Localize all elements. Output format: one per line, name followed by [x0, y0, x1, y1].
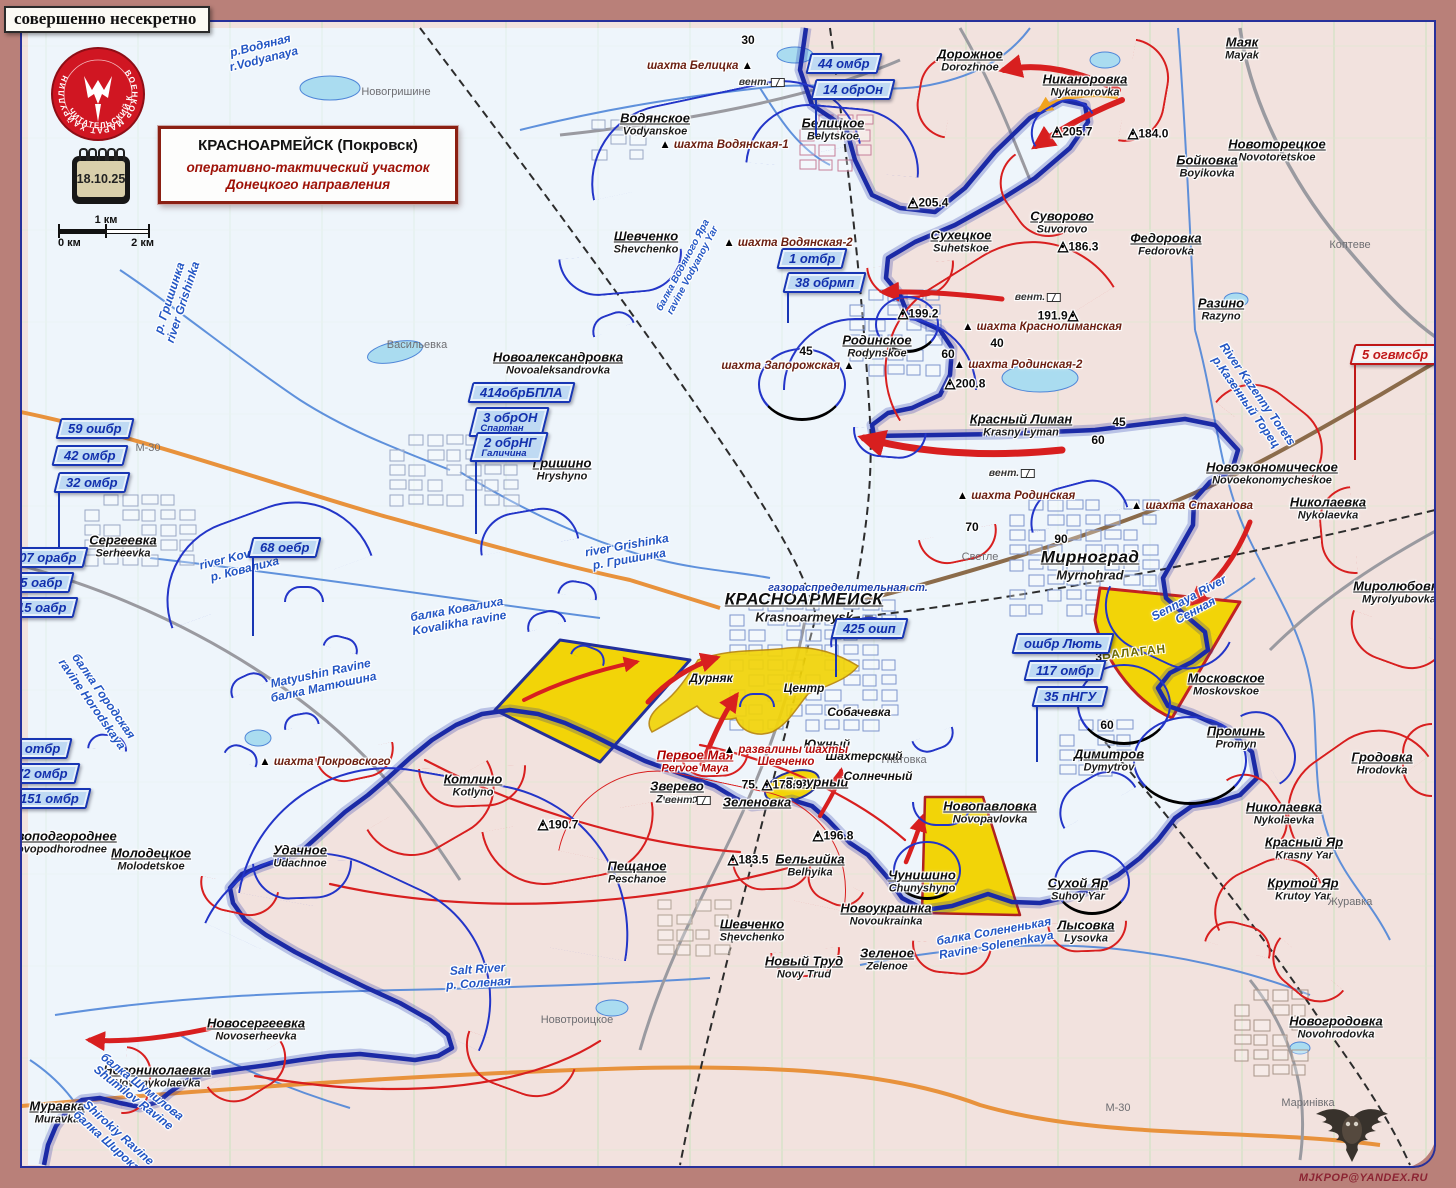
height-marker: △205.4 — [908, 194, 949, 211]
town-name-translit: Udachnoe — [273, 858, 327, 870]
town-label: СухецкоеSuhetskoe — [930, 228, 991, 255]
mine-name: шахта Запорожская — [721, 360, 840, 372]
town-name-ru: Красный Лиман — [970, 412, 1072, 427]
unit-designation: 44 омбр — [818, 56, 870, 71]
unit-flag: 1 отбр — [779, 248, 845, 269]
spot-number: 70 — [965, 520, 978, 534]
minor-place-label: М-30 — [135, 442, 160, 454]
town-name-translit: Krasny Lyman — [970, 427, 1072, 439]
friendly-position-arc — [323, 632, 361, 655]
river-label: Matyushin Ravine балка Матюшина — [266, 655, 377, 705]
unit-flag: 2 отбр — [20, 738, 70, 759]
town-name-translit: Dorozhnoe — [937, 62, 1003, 74]
town-name-translit: Mayak — [1225, 50, 1259, 62]
unit-designation: 117 омбр — [1036, 663, 1094, 678]
town-label: НовоэкономическоеNovoekonomycheskoe — [1206, 460, 1338, 487]
height-icon: △ — [762, 776, 773, 792]
height-icon: △ — [1128, 125, 1139, 141]
town-name-ru: Шевченко — [614, 229, 679, 244]
unit-designation: 35 пНГУ — [1044, 689, 1096, 704]
town-name-ru: Новоалександровка — [493, 350, 623, 365]
mine-name: развалины шахтыШевченко — [738, 744, 848, 768]
scale-bar: 1 км 0 км 2 км — [58, 214, 154, 249]
town-name-translit: Hryshyno — [533, 471, 592, 483]
town-name-ru: Николаевка — [1290, 495, 1366, 510]
town-label: МирноградMyrnohrad — [1041, 548, 1140, 583]
town-name-translit: Novy Trud — [765, 969, 843, 981]
unit-designation: 151 омбр — [20, 791, 79, 806]
unit-designation: 414обрБПЛА — [480, 385, 563, 400]
minor-place-label: Коптеве — [1329, 239, 1370, 251]
town-label: НовоторецкоеNovotoretskoe — [1228, 137, 1325, 164]
mine-ruins-label: ▲ развалины шахтыШевченко — [724, 744, 848, 768]
town-name-translit: Suhetskoe — [930, 243, 991, 255]
unit-designation: ошбр Лють — [1024, 636, 1102, 651]
unit-flag: 2 обрНГГаличина — [473, 432, 545, 462]
mine-label: шахта Запорожская ▲ — [721, 360, 854, 372]
town-label: БойковкаBoyikovka — [1176, 153, 1237, 180]
minor-place-label: Гнатовка — [881, 754, 926, 766]
town-name-ru: Новоподгороднее — [20, 829, 117, 844]
flag-pole — [1354, 365, 1356, 460]
height-value: 186.3 — [1068, 240, 1098, 254]
town-label: НиколаевкаNykolaevka — [1246, 800, 1322, 827]
town-name-ru: Разино — [1198, 296, 1244, 311]
river-label: балка Городская ravine Horodskaya — [56, 648, 141, 752]
town-label: Зеленовка — [723, 795, 792, 810]
vent-shaft-label: вент. — [989, 467, 1035, 479]
town-label: Красный ЛиманKrasny Lyman — [970, 412, 1072, 439]
town-name-translit: Suvorovo — [1030, 224, 1093, 236]
friendly-position-arc — [758, 348, 846, 421]
height-marker: △184.0 — [1128, 125, 1169, 142]
height-icon: △ — [908, 194, 919, 210]
friendly-position-arc — [851, 427, 927, 461]
height-value: 178.9 — [772, 778, 802, 792]
town-name-translit: Myrolyubovka — [1353, 594, 1436, 606]
mine-label: ▲ шахта Водянская-1 — [659, 139, 788, 151]
town-label: НовоалександровкаNovoaleksandrovka — [493, 350, 623, 377]
town-label: НовопавловкаNovopavlovka — [943, 799, 1037, 826]
height-icon: △ — [538, 816, 549, 832]
vent-shaft-label: вент. — [739, 76, 785, 88]
height-value: 205.4 — [918, 196, 948, 210]
height-marker: △200.8 — [945, 375, 986, 392]
mine-icon: ▲ — [957, 490, 968, 502]
mine-label: шахта Белицка ▲ — [647, 60, 753, 72]
town-name-translit: Shevchenko — [720, 932, 785, 944]
town-label: ШевченкоShevchenko — [720, 917, 785, 944]
mine-name: шахта Родинская — [971, 490, 1075, 502]
town-label: Первое МаяPervoe Maya — [657, 748, 734, 775]
town-name-ru: Первое Мая — [657, 748, 734, 763]
town-name-translit: Nykolaevka — [1290, 510, 1366, 522]
friendly-position-arc — [282, 710, 320, 730]
unit-designation: 68 оебр — [260, 540, 309, 555]
unit-flag: ошбр Лють — [1014, 633, 1112, 654]
town-name-ru: Котлино — [444, 772, 503, 787]
mine-label: ▲ шахта Родинская-2 — [954, 359, 1083, 371]
scale-zero-label: 0 км — [58, 237, 81, 249]
flag-pole — [787, 293, 789, 323]
town-name-translit: Belytskoe — [802, 131, 865, 143]
friendly-position-arc — [588, 307, 635, 338]
spot-number: 45 — [1112, 415, 1125, 429]
mine-icon: ▲ — [1131, 500, 1142, 512]
height-icon: △ — [1068, 307, 1079, 323]
unit-flag: 59 ошбр — [58, 418, 132, 439]
flag-pole — [815, 100, 817, 136]
river-label: р.Водяная r.Vodyanaya — [225, 30, 300, 74]
height-value: 183.5 — [738, 853, 768, 867]
town-name-translit: Boyikovka — [1176, 168, 1237, 180]
spot-number: 60 — [1091, 433, 1104, 447]
minor-place-label: М-30 — [1105, 1102, 1130, 1114]
town-label: НовоукраинкаNovoukrainka — [840, 901, 931, 928]
map-date: 18.10.25 — [77, 161, 125, 197]
town-name-ru: Бельгийка — [775, 852, 844, 867]
district-label: Дурняк — [689, 671, 732, 685]
enemy-position-arc — [1259, 937, 1344, 1016]
town-name-translit: Vodyanskoe — [620, 126, 690, 138]
town-name-ru: Новопавловка — [943, 799, 1037, 814]
height-marker: △190.7 — [538, 816, 579, 833]
unit-designation: 1 отбр — [789, 251, 835, 266]
town-name-translit: Nykanorovka — [1043, 87, 1128, 99]
town-label: ГродовкаHrodovka — [1351, 750, 1412, 777]
friendly-position-arc — [739, 693, 775, 707]
vent-icon — [697, 796, 711, 805]
town-name-ru: Зверево — [650, 779, 704, 794]
town-name-translit: Novoukrainka — [840, 916, 931, 928]
unit-flag: 42 омбр — [54, 445, 126, 466]
town-name-translit: Peschanoe — [608, 874, 667, 886]
town-label: ДорожноеDorozhnoe — [937, 47, 1003, 74]
friendly-position-arc — [224, 740, 263, 768]
mine-name: шахта Водянская-1 — [674, 139, 789, 151]
unit-designation: 72 омбр — [20, 766, 68, 781]
unit-flag: 35 пНГУ — [1034, 686, 1106, 707]
town-name-ru: Суворово — [1030, 209, 1093, 224]
town-label: МосковскоеMoskovskoe — [1187, 671, 1264, 698]
unit-flag: 414обрБПЛА — [470, 382, 573, 403]
minor-place-label: Журавка — [1328, 896, 1373, 908]
town-label: ФедоровкаFedorovka — [1130, 231, 1201, 258]
town-label: Новый ТрудNovy Trud — [765, 954, 843, 981]
town-name-ru: Мирноград — [1041, 548, 1140, 568]
unit-flag: 15 оабр — [20, 597, 76, 618]
town-name-ru: Сергеевка — [89, 533, 156, 548]
town-name-translit: Hrodovka — [1351, 765, 1412, 777]
unit-designation: 59 ошбр — [68, 421, 122, 436]
unit-designation: 107 орабр — [20, 550, 76, 565]
unit-flag: 44 омбр — [808, 53, 880, 74]
town-name-translit: Kotlyno — [444, 787, 503, 799]
district-label: Собачевка — [827, 705, 890, 719]
town-label: МолодецкоеMolodetskoe — [111, 846, 191, 873]
town-label: РодинскоеRodynskoe — [842, 333, 911, 360]
military-blogger-logo: ВОЕНКОР МАРАТ ХАЙРУЛЛИН ЧИТАТЕЛЬСКИЙ КЛУ… — [50, 46, 146, 142]
river-label: Sennaya River Сенная — [1149, 572, 1235, 636]
height-marker: △186.3 — [1058, 238, 1099, 255]
town-name-ru: Белицкое — [802, 116, 865, 131]
unit-subname: Галичина — [481, 448, 533, 459]
spot-number: 30 — [741, 33, 754, 47]
town-label: СергеевкаSerheevka — [89, 533, 156, 560]
unit-designation: 425 ошп — [843, 621, 896, 636]
enemy-position-arc — [986, 153, 1069, 251]
height-marker: △205.7 — [1052, 123, 1093, 140]
unit-designation: 42 омбр — [64, 448, 116, 463]
river-label: р. Гришинка river Grishinka — [150, 255, 203, 344]
town-label: БелицкоеBelytskoe — [802, 116, 865, 143]
friendly-position-arc — [474, 502, 579, 556]
enemy-position-arc — [1204, 915, 1277, 959]
town-name-translit: Dymytrov — [1074, 762, 1144, 774]
height-icon: △ — [898, 305, 909, 321]
unit-flag: 38 обрмп — [785, 272, 864, 293]
mine-label: ▲ шахта Стаханова — [1131, 500, 1253, 512]
unit-flag: 14 обрОн — [813, 79, 893, 100]
town-name-translit: Krasny Yar — [1265, 850, 1343, 862]
town-label: РазиноRazyno — [1198, 296, 1244, 323]
height-value: 200.8 — [955, 377, 985, 391]
town-label: НиканоровкаNykanorovka — [1043, 72, 1128, 99]
town-name-translit: Novoaleksandrovka — [493, 365, 623, 377]
town-label: МаякMayak — [1225, 35, 1259, 62]
town-label: ЧунишиноChunyshyno — [888, 868, 956, 895]
town-name-translit: Pervoe Maya — [657, 763, 734, 775]
friendly-position-arc — [557, 578, 599, 601]
enemy-position-arc — [195, 876, 279, 922]
town-name-translit: Suhoy Yar — [1048, 891, 1109, 903]
town-name-translit: Zelenoe — [860, 961, 914, 973]
town-name-ru: Пещаное — [608, 859, 667, 874]
river-label: Salt River р. Соленая — [445, 960, 512, 992]
height-value: 196.8 — [823, 829, 853, 843]
height-marker: △183.5 — [728, 851, 769, 868]
map-title: КРАСНОАРМЕЙСК (Покровск) — [167, 137, 449, 154]
town-label: ЗеленоеZelenoe — [860, 946, 914, 973]
unit-designation: 15 оабр — [20, 600, 66, 615]
mine-label: ▲ шахта Родинская — [957, 490, 1076, 502]
scale-end-label: 2 км — [131, 237, 154, 249]
town-name-ru: Родинское — [842, 333, 911, 348]
unit-flag: 151 омбр — [20, 788, 89, 809]
minor-place-label: Светле — [962, 551, 999, 563]
town-name-ru: Новый Труд — [765, 954, 843, 969]
unit-flag: 425 ошп — [833, 618, 906, 639]
spot-number: 90 — [1054, 532, 1067, 546]
calendar-date-icon: 18.10.25 — [72, 150, 130, 206]
gas-station-label: газораспределительная ст. — [768, 582, 928, 594]
town-label: НовосергеевкаNovoserheevka — [207, 1016, 305, 1043]
town-name-ru: Чунишино — [888, 868, 956, 883]
height-value: 191.9 — [1038, 309, 1068, 323]
height-marker: △199.2 — [898, 305, 939, 322]
unit-flag: 32 омбр — [56, 472, 128, 493]
town-label: ПроминьPromyn — [1207, 724, 1265, 751]
friendly-position-arc — [284, 586, 324, 602]
town-label: НовоподгороднееNovopodhorodnee — [20, 829, 117, 856]
town-name-ru: Миролюбовка — [1353, 579, 1436, 594]
friendly-position-arc — [911, 726, 958, 757]
height-marker: 75. △178.9 — [742, 776, 803, 793]
height-marker: △196.8 — [813, 827, 854, 844]
unit-designation: 2 отбр — [20, 741, 60, 756]
town-name-ru: Новоэкономическое — [1206, 460, 1338, 475]
town-name-translit: Razyno — [1198, 311, 1244, 323]
enemy-position-arc — [866, 260, 957, 302]
town-label: ПещаноеPeschanoe — [608, 859, 667, 886]
town-name-translit: Belhyika — [775, 867, 844, 879]
minor-place-label: Новотроицкое — [541, 1014, 614, 1026]
spot-number: 45 — [799, 344, 812, 358]
mine-icon: ▲ — [954, 359, 965, 371]
flag-pole — [58, 493, 60, 553]
town-name-translit: Novoekonomycheskoe — [1206, 475, 1338, 487]
town-name-ru: Новогродовка — [1289, 1014, 1382, 1029]
map-subtitle-2: Донецкого направления — [167, 177, 449, 192]
town-name-ru: Проминь — [1207, 724, 1265, 739]
town-label: Красный ЯрKrasny Yar — [1265, 835, 1343, 862]
town-name-translit: Promyn — [1207, 739, 1265, 751]
town-name-ru: Николаевка — [1246, 800, 1322, 815]
enemy-position-arc — [1263, 705, 1430, 848]
district-label: Солнечный — [844, 769, 913, 783]
town-name-ru: Удачное — [273, 843, 327, 858]
vent-shaft-label: вент. — [665, 794, 711, 806]
town-name-translit: Fedorovka — [1130, 246, 1201, 258]
enemy-position-arc — [207, 1041, 299, 1115]
town-label: УдачноеUdachnoe — [273, 843, 327, 870]
town-name-translit: Molodetskoe — [111, 861, 191, 873]
spot-number: 40 — [990, 336, 1003, 350]
height-prefix: 75. — [742, 778, 762, 792]
unit-designation: 14 обрОн — [823, 82, 883, 97]
mine-label: ▲ шахта Покровского — [259, 756, 390, 768]
mine-icon: ▲ — [843, 360, 854, 372]
height-value: 199.2 — [908, 307, 938, 321]
town-label: НовогродовкаNovohrodovka — [1289, 1014, 1382, 1041]
mine-icon: ▲ — [723, 237, 734, 249]
town-label: МиролюбовкаMyrolyubovka — [1353, 579, 1436, 606]
spot-number: 60 — [941, 347, 954, 361]
flag-pole — [835, 639, 837, 677]
unit-designation: 55 оабр — [20, 575, 62, 590]
height-icon: △ — [813, 827, 824, 843]
spot-number: 60 — [1100, 718, 1113, 732]
town-label: ВодянскоеVodyanskoe — [620, 111, 690, 138]
mine-name: шахта Стаханова — [1146, 500, 1254, 512]
unit-designation: 5 огвмсбр — [1362, 347, 1428, 362]
river-label: river Grishinka р. Гришинка — [584, 531, 672, 573]
town-label: Сухой ЯрSuhoy Yar — [1048, 876, 1109, 903]
mine-name: шахта Покровского — [274, 756, 391, 768]
height-value: 184.0 — [1138, 127, 1168, 141]
town-label: СуворовоSuvorovo — [1030, 209, 1093, 236]
town-name-ru: Шевченко — [720, 917, 785, 932]
town-name-translit: Chunyshyno — [888, 883, 956, 895]
unit-designation: 32 омбр — [66, 475, 118, 490]
vent-icon — [1021, 469, 1035, 478]
town-name-ru: Водянское — [620, 111, 690, 126]
mine-icon: ▲ — [659, 139, 670, 151]
town-name-translit: Novopodhorodnee — [20, 844, 117, 856]
town-name-translit: Serheevka — [89, 548, 156, 560]
town-name-translit: Novohrodovka — [1289, 1029, 1382, 1041]
town-name-ru: Новосергеевка — [207, 1016, 305, 1031]
mine-name: шахта Белицка — [647, 60, 738, 72]
town-name-ru: Гродовка — [1351, 750, 1412, 765]
classification-banner: совершенно несекретно — [4, 6, 210, 33]
town-name-translit: Novotoretskoe — [1228, 152, 1325, 164]
mine-name: шахта Родинская-2 — [968, 359, 1082, 371]
friendly-position-arc — [1022, 471, 1128, 533]
enemy-position-arc — [1340, 610, 1436, 680]
town-name-ru: Крутой Яр — [1267, 876, 1338, 891]
town-name-translit: Shevchenko — [614, 244, 679, 256]
height-value: 205.7 — [1062, 125, 1092, 139]
minor-place-label: Васильевка — [387, 339, 447, 351]
height-icon: △ — [1052, 123, 1063, 139]
height-icon: △ — [945, 375, 956, 391]
map-subtitle-1: оперативно-тактический участок — [167, 160, 449, 175]
unit-flag: 107 орабр — [20, 547, 86, 568]
town-name-ru: Лысовка — [1057, 918, 1114, 933]
height-value: 190.7 — [548, 818, 578, 832]
enemy-position-arc — [454, 1031, 575, 1109]
town-name-translit: Novopavlovka — [943, 814, 1037, 826]
friendly-position-arc — [524, 606, 567, 632]
town-name-ru: Димитров — [1074, 747, 1144, 762]
town-name-translit: Nykolaevka — [1246, 815, 1322, 827]
town-name-ru: Федоровка — [1130, 231, 1201, 246]
town-label: ЛысовкаLysovka — [1057, 918, 1114, 945]
author-watermark: MJKPOP@YANDEX.RU — [1299, 1172, 1428, 1184]
friendly-position-arc — [570, 641, 609, 666]
height-marker: 191.9△ — [1038, 307, 1079, 324]
flag-pole — [475, 462, 477, 534]
vent-shaft-label: вент. — [1015, 291, 1061, 303]
town-name-ru: Сухой Яр — [1048, 876, 1109, 891]
town-name-translit: Rodynskoe — [842, 348, 911, 360]
town-name-ru: Зеленое — [860, 946, 914, 961]
mine-icon: ▲ — [742, 60, 753, 72]
friendly-position-arc — [225, 667, 268, 698]
town-name-translit: Moskovskoe — [1187, 686, 1264, 698]
town-name-ru: Маяк — [1225, 35, 1259, 50]
town-label: ШевченкоShevchenko — [614, 229, 679, 256]
town-name-translit: Myrnohrad — [1041, 568, 1140, 583]
height-icon: △ — [1058, 238, 1069, 254]
unit-flag: 117 омбр — [1026, 660, 1104, 681]
flag-pole — [1036, 707, 1038, 762]
mine-icon: ▲ — [962, 321, 973, 333]
mine-icon: ▲ — [724, 744, 735, 756]
town-label: КотлиноKotlyno — [444, 772, 503, 799]
town-name-ru: Никаноровка — [1043, 72, 1128, 87]
town-name-ru: Новоторецкое — [1228, 137, 1325, 152]
town-name-ru: Новоукраинка — [840, 901, 931, 916]
town-name-ru: Красный Яр — [1265, 835, 1343, 850]
enemy-unit-flag: 5 огвмсбр — [1352, 344, 1436, 365]
river-label: балка Солененькая Ravine Solenenkaya — [935, 914, 1054, 962]
mine-icon: ▲ — [259, 756, 270, 768]
vent-icon — [771, 78, 785, 87]
town-name-ru: Молодецкое — [111, 846, 191, 861]
owl-emblem — [1306, 1104, 1398, 1166]
